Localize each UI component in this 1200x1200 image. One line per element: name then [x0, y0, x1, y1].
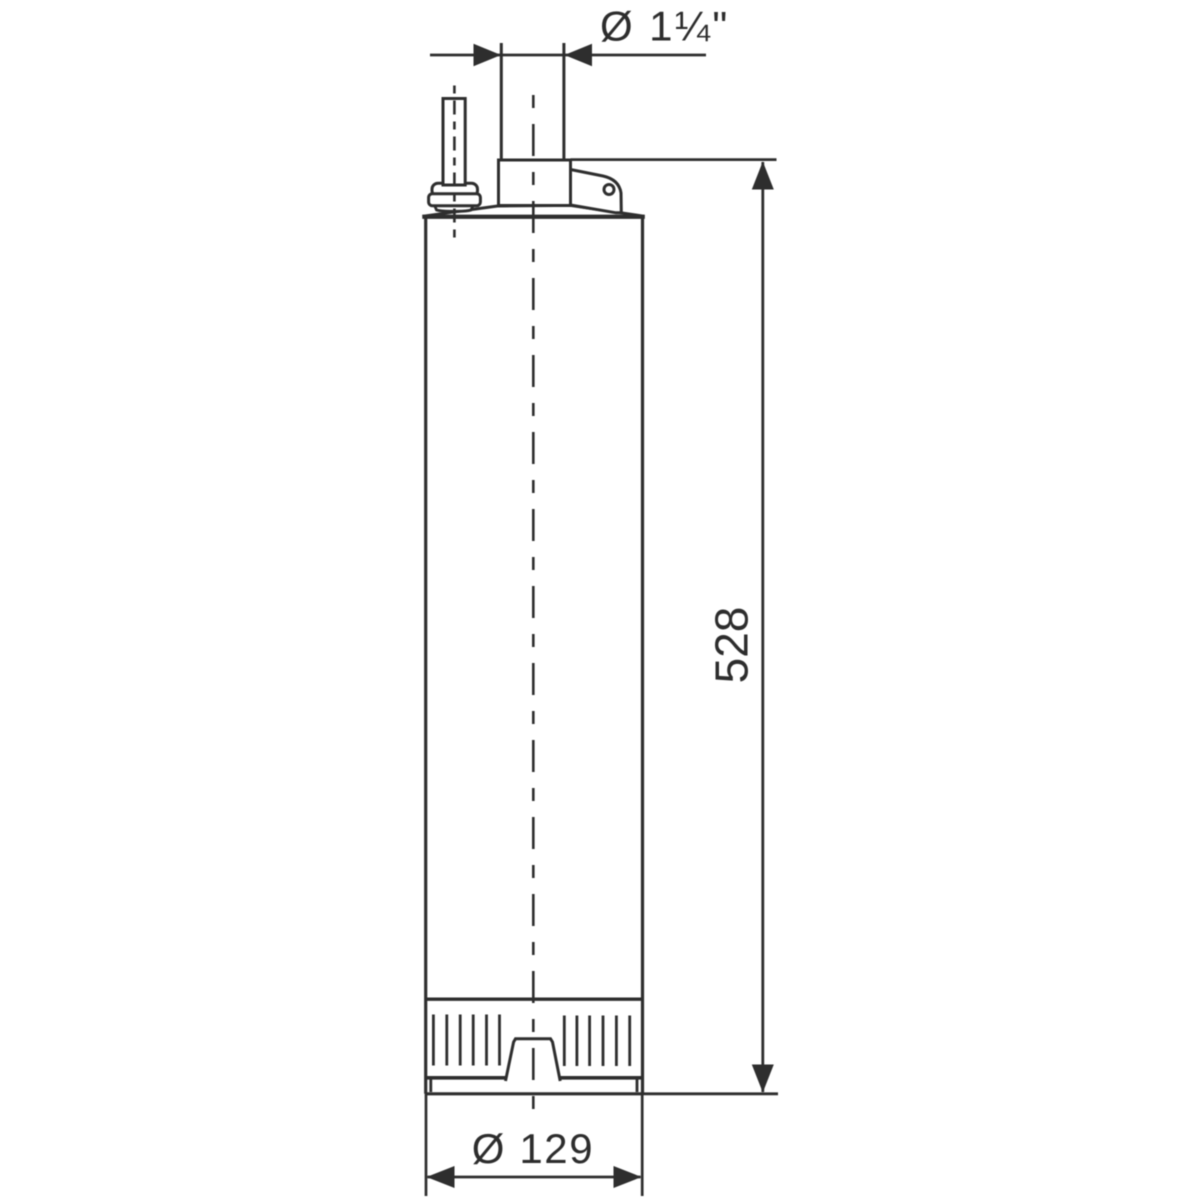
svg-text:Ø 129: Ø 129 [472, 1125, 594, 1172]
svg-text:528: 528 [706, 607, 758, 684]
svg-text:Ø 1¼": Ø 1¼" [600, 3, 730, 50]
